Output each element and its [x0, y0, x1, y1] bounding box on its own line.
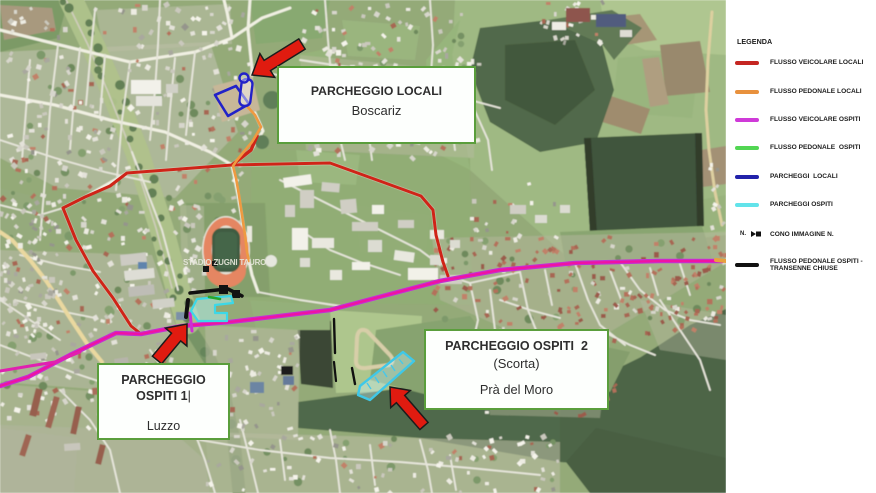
- svg-text:STADIO ZUGNI TAURO: STADIO ZUGNI TAURO: [183, 258, 266, 267]
